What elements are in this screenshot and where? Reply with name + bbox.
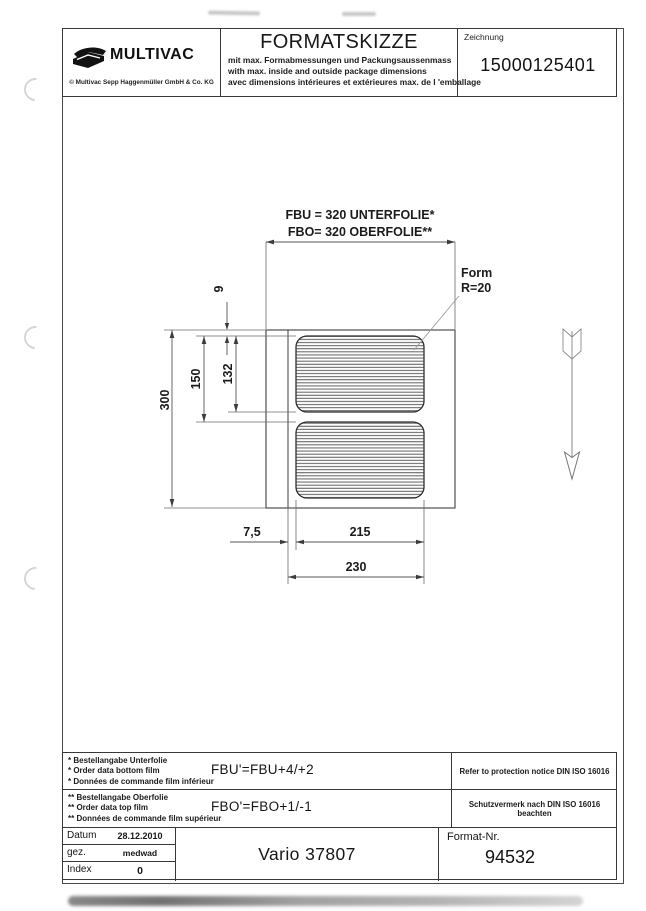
top-film-notes: ** Bestellangabe Oberfolie ** Order data… [68, 793, 221, 824]
dim-label-300: 300 [158, 390, 172, 411]
date-row: Datum 28.12.2010 [63, 828, 175, 845]
note-fr: * Données de commande film inférieur [68, 777, 214, 787]
bottom-film-notes: * Bestellangabe Unterfolie * Order data … [68, 756, 214, 787]
index-row: Index 0 [63, 862, 175, 881]
extension-lines [164, 242, 455, 584]
scan-artifact [68, 896, 583, 906]
bottom-film-row: * Bestellangabe Unterfolie * Order data … [63, 753, 616, 790]
dim-label-150: 150 [189, 369, 203, 390]
dim-label-fbu: FBU = 320 UNTERFOLIE* [286, 208, 435, 222]
dim-label-7-5: 7,5 [243, 525, 260, 539]
bottom-film-formula: FBU'=FBU+4/+2 [211, 762, 314, 777]
protection-notice-de: Schutzvermerk nach DIN ISO 16016 beachte… [451, 790, 617, 827]
date-value: 28.12.2010 [106, 831, 174, 841]
note-de: ** Bestellangabe Oberfolie [68, 793, 221, 803]
top-film-formula: FBO'=FBO+1/-1 [211, 799, 312, 814]
dim-label-230: 230 [346, 560, 367, 574]
note-en: * Order data bottom film [68, 766, 214, 776]
drawn-by-row: gez. medwad [63, 845, 175, 862]
top-film-row: ** Bestellangabe Oberfolie ** Order data… [63, 790, 616, 828]
revision-subtable: Datum 28.12.2010 gez. medwad Index 0 [63, 828, 176, 881]
protection-notice-en: Refer to protection notice DIN ISO 16016 [451, 753, 617, 789]
format-number-label: Format-Nr. [447, 831, 500, 843]
index-label: Index [67, 864, 91, 875]
package-cavity-2 [296, 422, 424, 498]
form-label: Form [461, 266, 492, 280]
dim-label-132: 132 [221, 364, 235, 385]
format-number-value: 94532 [455, 847, 565, 868]
index-value: 0 [106, 865, 174, 877]
film-transport-arrow-icon [563, 329, 581, 479]
form-radius-leader-line [414, 296, 459, 350]
date-label: Datum [67, 830, 96, 841]
machine-model: Vario 37807 [176, 828, 439, 881]
drawn-by-value: medwad [106, 848, 174, 858]
scanned-document: { "header": { "logo": { "brand": "MULTIV… [0, 0, 646, 911]
title-block-row: Datum 28.12.2010 gez. medwad Index 0 Var… [63, 828, 616, 881]
footer-table: * Bestellangabe Unterfolie * Order data … [62, 752, 617, 880]
note-de: * Bestellangabe Unterfolie [68, 756, 214, 766]
drawn-by-label: gez. [67, 847, 86, 858]
note-fr: ** Données de commande film supérieur [68, 814, 221, 824]
package-cavity-1 [296, 336, 424, 412]
dim-label-fbo: FBO= 320 OBERFOLIE** [288, 225, 432, 239]
dim-label-9: 9 [212, 285, 226, 292]
note-en: ** Order data top film [68, 803, 221, 813]
dim-label-215: 215 [350, 525, 371, 539]
form-radius-label: R=20 [461, 281, 491, 295]
format-number-cell: Format-Nr. 94532 [439, 828, 618, 881]
